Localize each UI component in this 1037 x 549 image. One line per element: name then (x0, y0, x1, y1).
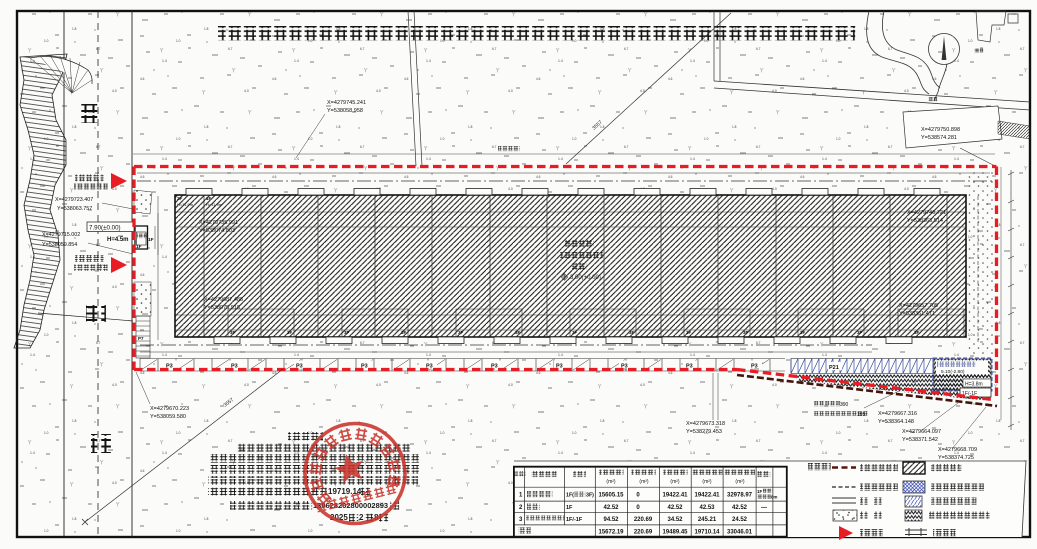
svg-text:X=4279750.898: X=4279750.898 (921, 127, 960, 133)
svg-text:5.10(-2.80): 5.10(-2.80) (941, 369, 965, 375)
svg-text:19489.45: 19489.45 (662, 530, 688, 536)
svg-text:3F: 3F (686, 330, 692, 335)
svg-text:3.00(+0.00): 3.00(+0.00) (570, 275, 601, 281)
svg-text:3F: 3F (629, 330, 635, 335)
svg-text:3F: 3F (401, 330, 407, 335)
svg-text:H=11.9m: H=11.9m (177, 202, 194, 207)
svg-text:1F: 1F (136, 244, 142, 250)
svg-text:(m²): (m²) (606, 479, 615, 485)
svg-text:3F: 3F (800, 330, 806, 335)
svg-text:Y=538058.958: Y=538058.958 (327, 108, 363, 114)
svg-text:Y=538059.854: Y=538059.854 (42, 242, 77, 248)
svg-text:32978.97: 32978.97 (727, 493, 753, 499)
svg-text:220.69: 220.69 (634, 517, 653, 523)
svg-text:X=4279667.316: X=4279667.316 (878, 411, 917, 417)
svg-text:3F: 3F (230, 330, 236, 335)
svg-text:X=4279740.721: X=4279740.721 (907, 210, 946, 216)
svg-text:H=3.8m: H=3.8m (965, 382, 983, 388)
svg-text:Y=538371.542: Y=538371.542 (902, 437, 938, 443)
svg-text:34.52: 34.52 (667, 517, 683, 523)
svg-text:42.52: 42.52 (732, 505, 748, 511)
svg-text:X=4279657.705: X=4279657.705 (899, 303, 938, 309)
svg-text:3F: 3F (914, 330, 920, 335)
svg-text:Y=538059.580: Y=538059.580 (150, 414, 186, 420)
svg-text:Y=538361.471: Y=538361.471 (899, 311, 935, 317)
svg-text:X=4279668.709: X=4279668.709 (938, 447, 977, 453)
svg-text:390: 390 (840, 402, 849, 408)
svg-text:245.21: 245.21 (698, 517, 717, 523)
svg-text:2: 2 (359, 513, 364, 522)
svg-text:42.53: 42.53 (699, 505, 715, 511)
svg-text:Y=538574.281: Y=538574.281 (921, 135, 957, 141)
svg-text:3F: 3F (515, 330, 521, 335)
svg-text:P3: P3 (751, 364, 758, 370)
svg-text:Y=538279.453: Y=538279.453 (686, 429, 722, 435)
svg-text:3F: 3F (287, 330, 293, 335)
svg-text:X=4279715.002: X=4279715.002 (42, 232, 80, 238)
svg-text:Y=538364.148: Y=538364.148 (878, 419, 914, 425)
svg-text:Y=538063.757: Y=538063.757 (57, 206, 92, 212)
svg-text:Y=538363.514: Y=538363.514 (907, 218, 943, 224)
svg-text:X=4279723.407: X=4279723.407 (55, 197, 93, 203)
svg-text:1F/-1F: 1F/-1F (566, 517, 583, 523)
svg-text:94.52: 94.52 (603, 517, 619, 523)
svg-text:195: 195 (857, 412, 866, 418)
svg-text:1F: 1F (206, 196, 212, 201)
svg-text:2F: 2F (177, 196, 183, 201)
svg-text:3F): 3F) (586, 493, 594, 499)
svg-text:24.52: 24.52 (732, 517, 748, 523)
svg-text:42.52: 42.52 (667, 505, 683, 511)
svg-text:42.52: 42.52 (603, 505, 619, 511)
svg-text:X=4279670.223: X=4279670.223 (150, 406, 189, 412)
svg-text:Y=538374.725: Y=538374.725 (938, 455, 974, 461)
svg-text:H=11.9m: H=11.9m (206, 202, 223, 207)
svg-text:7.90(±0.00): 7.90(±0.00) (89, 225, 121, 232)
svg-text:—: — (761, 505, 767, 511)
svg-text:P21: P21 (829, 365, 839, 371)
svg-text:3F: 3F (857, 330, 863, 335)
svg-text:(m²): (m²) (702, 479, 711, 485)
svg-text:1F: 1F (148, 237, 154, 243)
svg-text:3F: 3F (743, 330, 749, 335)
svg-text:3F: 3F (572, 330, 578, 335)
svg-text:3F: 3F (458, 330, 464, 335)
svg-text:X=4279664.097: X=4279664.097 (902, 429, 941, 435)
svg-text:(m²): (m²) (670, 479, 679, 485)
svg-text:1F: 1F (566, 505, 573, 511)
svg-text:15672.19: 15672.19 (598, 530, 624, 536)
svg-text:19710.14: 19710.14 (694, 530, 720, 536)
svg-text:220.69: 220.69 (634, 530, 653, 536)
svg-text:15605.15: 15605.15 (598, 493, 624, 499)
svg-text:X=4279745.241: X=4279745.241 (327, 100, 366, 106)
svg-text:(m²): (m²) (639, 479, 648, 485)
svg-text:19422.41: 19422.41 (694, 493, 720, 499)
svg-text:Y=538075.918: Y=538075.918 (204, 305, 240, 311)
svg-text:H=4.5m: H=4.5m (107, 237, 129, 243)
svg-text:8m: 8m (771, 495, 777, 500)
svg-text:X=4279687.485: X=4279687.485 (204, 297, 243, 303)
svg-text:P7: P7 (138, 336, 144, 341)
svg-text:1F(: 1F( (566, 493, 574, 499)
svg-text:X=4279673.318: X=4279673.318 (686, 421, 725, 427)
svg-text:X=4279735.991: X=4279735.991 (199, 220, 238, 226)
svg-text:19422.41: 19422.41 (662, 493, 688, 499)
svg-text:(m²): (m²) (735, 479, 744, 485)
svg-text:33046.01: 33046.01 (727, 530, 753, 536)
svg-text:3F: 3F (344, 330, 350, 335)
svg-text:1F: 1F (757, 489, 762, 494)
svg-text:Y=538074.803: Y=538074.803 (199, 228, 235, 234)
